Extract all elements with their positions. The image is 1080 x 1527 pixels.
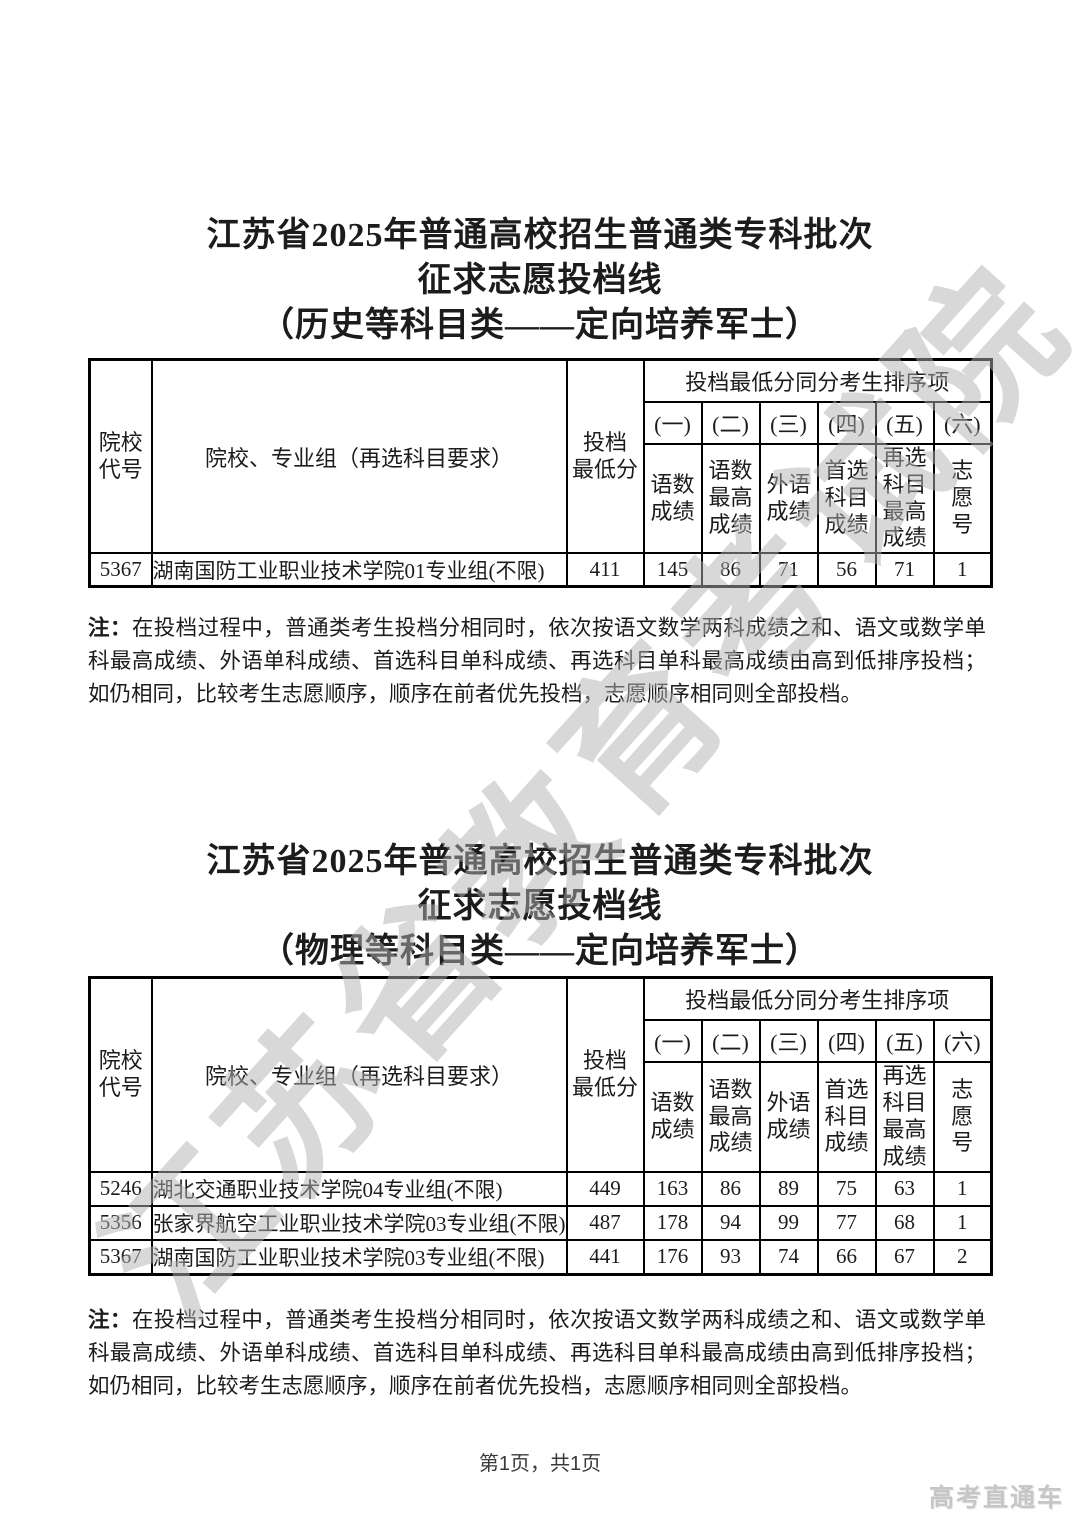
header-tiebreak-label-6: 志 愿 号 bbox=[934, 444, 992, 553]
header-tiebreak-num-6: (六) bbox=[934, 1020, 992, 1062]
cell-tiebreak-2: 86 bbox=[702, 1172, 760, 1206]
header-tiebreak-title: 投档最低分同分考生排序项 bbox=[644, 360, 992, 403]
note-text: 在投档过程中，普通类考生投档分相同时，依次按语文数学两科成绩之和、语文或数学单科… bbox=[88, 616, 986, 706]
header-tiebreak-num-5: (五) bbox=[876, 402, 934, 444]
note-label: 注： bbox=[88, 616, 132, 640]
header-tiebreak-num-4: (四) bbox=[818, 1020, 876, 1062]
cell-tiebreak-4: 75 bbox=[818, 1172, 876, 1206]
header-tiebreak-num-4: (四) bbox=[818, 402, 876, 444]
title-line-3: （历史等科目类——定向培养军士） bbox=[0, 303, 1080, 348]
cell-code: 5367 bbox=[90, 1240, 152, 1275]
title-line-2: 征求志愿投档线 bbox=[0, 884, 1080, 929]
table-row: 5367 湖南国防工业职业技术学院01专业组(不限) 411 145 86 71… bbox=[90, 553, 992, 587]
cell-tiebreak-6: 1 bbox=[934, 1206, 992, 1240]
section-physics: 江苏省2025年普通高校招生普通类专科批次 征求志愿投档线 （物理等科目类——定… bbox=[0, 839, 1080, 1402]
header-tiebreak-title: 投档最低分同分考生排序项 bbox=[644, 978, 992, 1021]
header-tiebreak-num-3: (三) bbox=[760, 402, 818, 444]
header-tiebreak-label-6: 志 愿 号 bbox=[934, 1062, 992, 1171]
cell-code: 5356 bbox=[90, 1206, 152, 1240]
cell-tiebreak-3: 71 bbox=[760, 553, 818, 587]
cell-min-score: 449 bbox=[567, 1172, 644, 1206]
cell-tiebreak-4: 56 bbox=[818, 553, 876, 587]
title-line-2: 征求志愿投档线 bbox=[0, 258, 1080, 303]
cell-tiebreak-5: 67 bbox=[876, 1240, 934, 1275]
header-tiebreak-num-2: (二) bbox=[702, 402, 760, 444]
document-page: 江苏省教育考试院 江苏省2025年普通高校招生普通类专科批次 征求志愿投档线 （… bbox=[0, 0, 1080, 1527]
note-text: 在投档过程中，普通类考生投档分相同时，依次按语文数学两科成绩之和、语文或数学单科… bbox=[88, 1308, 986, 1398]
header-tiebreak-label-4: 首选 科目 成绩 bbox=[818, 444, 876, 553]
cell-tiebreak-2: 94 bbox=[702, 1206, 760, 1240]
header-school-code: 院校 代号 bbox=[90, 978, 152, 1172]
cell-tiebreak-5: 68 bbox=[876, 1206, 934, 1240]
section-title-history: 江苏省2025年普通高校招生普通类专科批次 征求志愿投档线 （历史等科目类——定… bbox=[0, 0, 1080, 348]
cell-tiebreak-4: 66 bbox=[818, 1240, 876, 1275]
cell-tiebreak-1: 176 bbox=[644, 1240, 702, 1275]
header-tiebreak-label-4: 首选 科目 成绩 bbox=[818, 1062, 876, 1171]
cell-tiebreak-6: 1 bbox=[934, 553, 992, 587]
cell-group: 张家界航空工业职业技术学院03专业组(不限) bbox=[152, 1206, 567, 1240]
note-label: 注： bbox=[88, 1308, 132, 1332]
header-tiebreak-label-3: 外语 成绩 bbox=[760, 1062, 818, 1171]
cell-group: 湖南国防工业职业技术学院01专业组(不限) bbox=[152, 553, 567, 587]
table-row: 5367 湖南国防工业职业技术学院03专业组(不限) 441 176 93 74… bbox=[90, 1240, 992, 1275]
cell-tiebreak-3: 89 bbox=[760, 1172, 818, 1206]
header-school-group: 院校、专业组（再选科目要求） bbox=[152, 360, 567, 554]
header-tiebreak-label-2: 语数 最高 成绩 bbox=[702, 444, 760, 553]
header-tiebreak-label-1: 语数 成绩 bbox=[644, 1062, 702, 1171]
cell-tiebreak-2: 86 bbox=[702, 553, 760, 587]
header-tiebreak-num-2: (二) bbox=[702, 1020, 760, 1062]
header-tiebreak-num-1: (一) bbox=[644, 402, 702, 444]
cell-tiebreak-1: 145 bbox=[644, 553, 702, 587]
cell-min-score: 441 bbox=[567, 1240, 644, 1275]
brand-logo-text: 高考直通车 bbox=[929, 1478, 1064, 1514]
section-history: 江苏省2025年普通高校招生普通类专科批次 征求志愿投档线 （历史等科目类——定… bbox=[0, 0, 1080, 711]
cell-tiebreak-6: 2 bbox=[934, 1240, 992, 1275]
cell-tiebreak-3: 99 bbox=[760, 1206, 818, 1240]
cell-tiebreak-5: 71 bbox=[876, 553, 934, 587]
cell-tiebreak-3: 74 bbox=[760, 1240, 818, 1275]
cell-tiebreak-1: 163 bbox=[644, 1172, 702, 1206]
score-table-physics: 院校 代号 院校、专业组（再选科目要求） 投档 最低分 投档最低分同分考生排序项… bbox=[88, 976, 993, 1275]
table-row: 5246 湖北交通职业技术学院04专业组(不限) 449 163 86 89 7… bbox=[90, 1172, 992, 1206]
cell-tiebreak-2: 93 bbox=[702, 1240, 760, 1275]
cell-group: 湖北交通职业技术学院04专业组(不限) bbox=[152, 1172, 567, 1206]
cell-code: 5367 bbox=[90, 553, 152, 587]
note-physics: 注：在投档过程中，普通类考生投档分相同时，依次按语文数学两科成绩之和、语文或数学… bbox=[88, 1304, 986, 1403]
section-title-physics: 江苏省2025年普通高校招生普通类专科批次 征求志愿投档线 （物理等科目类——定… bbox=[0, 839, 1080, 974]
table-row: 5356 张家界航空工业职业技术学院03专业组(不限) 487 178 94 9… bbox=[90, 1206, 992, 1240]
header-tiebreak-num-1: (一) bbox=[644, 1020, 702, 1062]
header-tiebreak-num-5: (五) bbox=[876, 1020, 934, 1062]
header-tiebreak-label-2: 语数 最高 成绩 bbox=[702, 1062, 760, 1171]
cell-min-score: 411 bbox=[567, 553, 644, 587]
header-tiebreak-num-3: (三) bbox=[760, 1020, 818, 1062]
cell-tiebreak-6: 1 bbox=[934, 1172, 992, 1206]
header-tiebreak-label-5: 再选 科目 最高 成绩 bbox=[876, 1062, 934, 1171]
cell-group: 湖南国防工业职业技术学院03专业组(不限) bbox=[152, 1240, 567, 1275]
header-min-score: 投档 最低分 bbox=[567, 360, 644, 554]
header-tiebreak-label-3: 外语 成绩 bbox=[760, 444, 818, 553]
cell-tiebreak-5: 63 bbox=[876, 1172, 934, 1206]
cell-tiebreak-4: 77 bbox=[818, 1206, 876, 1240]
title-line-1: 江苏省2025年普通高校招生普通类专科批次 bbox=[0, 213, 1080, 258]
cell-min-score: 487 bbox=[567, 1206, 644, 1240]
title-line-1: 江苏省2025年普通高校招生普通类专科批次 bbox=[0, 839, 1080, 884]
note-history: 注：在投档过程中，普通类考生投档分相同时，依次按语文数学两科成绩之和、语文或数学… bbox=[88, 612, 986, 711]
cell-tiebreak-1: 178 bbox=[644, 1206, 702, 1240]
header-min-score: 投档 最低分 bbox=[567, 978, 644, 1172]
title-line-3: （物理等科目类——定向培养军士） bbox=[0, 929, 1080, 974]
header-tiebreak-num-6: (六) bbox=[934, 402, 992, 444]
header-school-code: 院校 代号 bbox=[90, 360, 152, 554]
cell-code: 5246 bbox=[90, 1172, 152, 1206]
page-number: 第1页，共1页 bbox=[0, 1447, 1080, 1476]
header-tiebreak-label-5: 再选 科目 最高 成绩 bbox=[876, 444, 934, 553]
score-table-history: 院校 代号 院校、专业组（再选科目要求） 投档 最低分 投档最低分同分考生排序项… bbox=[88, 358, 993, 588]
header-tiebreak-label-1: 语数 成绩 bbox=[644, 444, 702, 553]
header-school-group: 院校、专业组（再选科目要求） bbox=[152, 978, 567, 1172]
